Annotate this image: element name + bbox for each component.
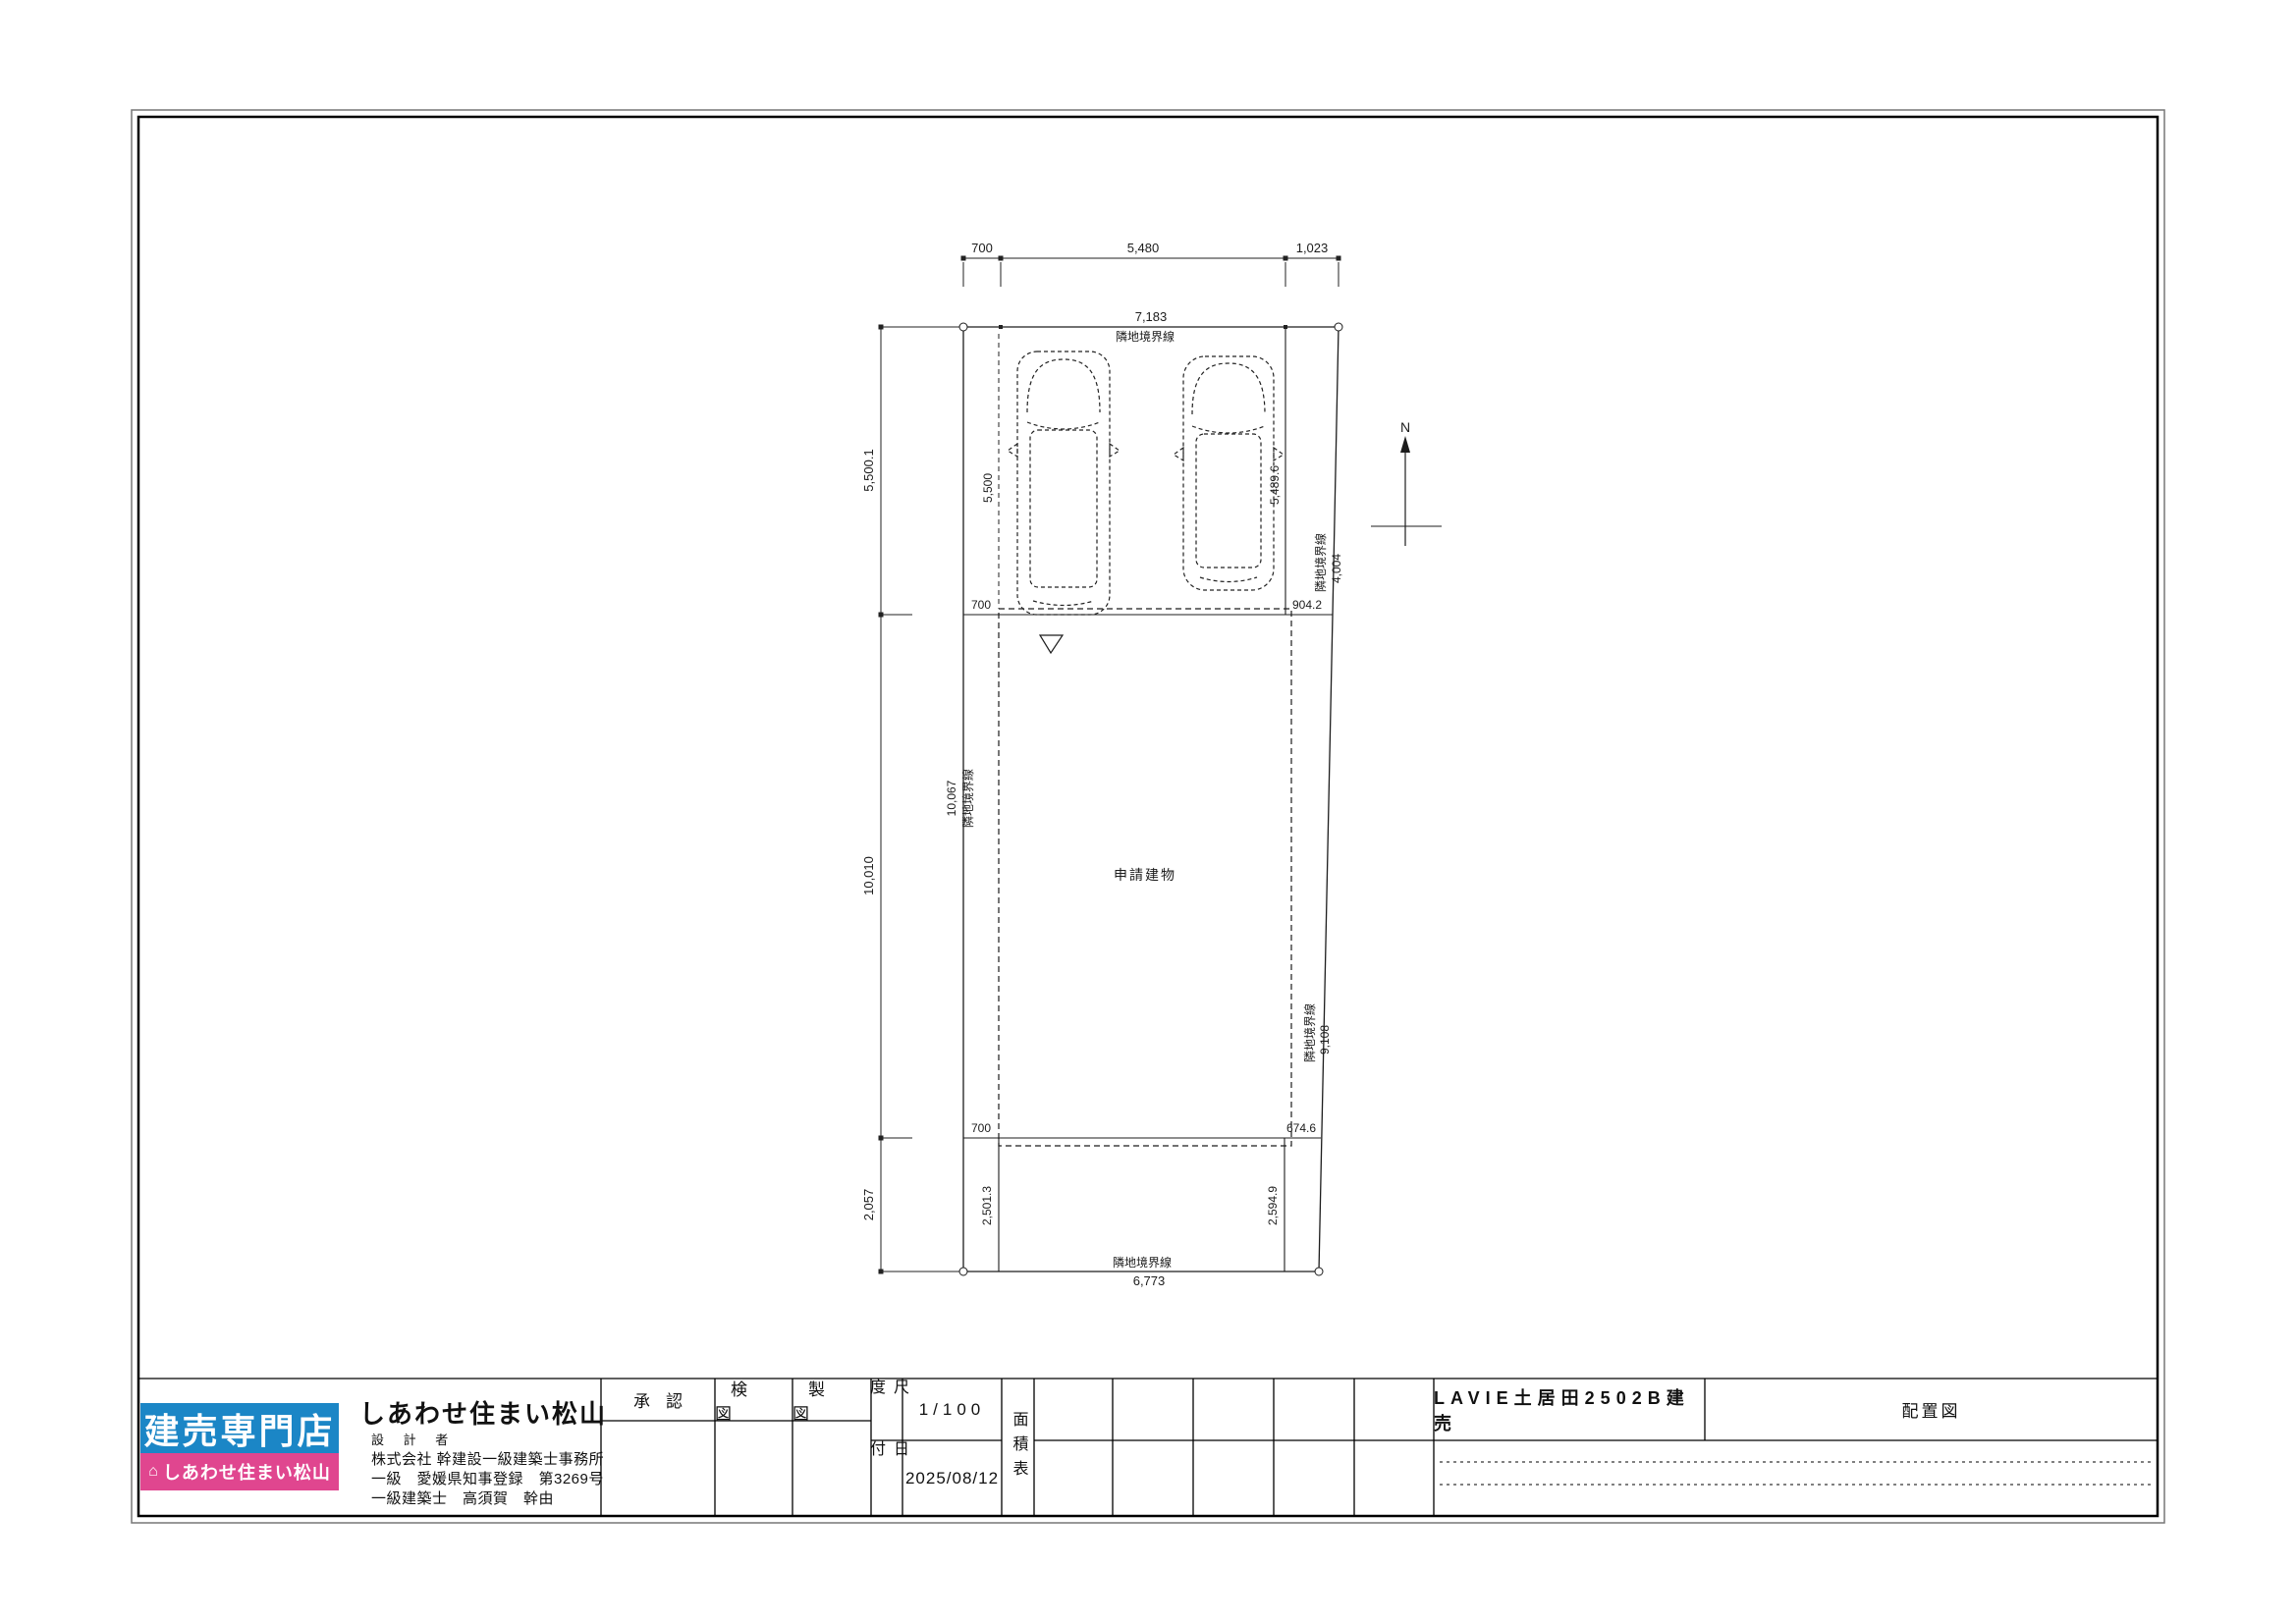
dim-rear-left: 2,501.3 xyxy=(980,1186,994,1225)
date-label: 日付 xyxy=(871,1440,902,1516)
dim-top-right: 1,023 xyxy=(1296,241,1329,255)
dim-park-left: 5,500 xyxy=(981,473,995,503)
logo-text-top: 建売専門店 xyxy=(143,1403,335,1454)
designer-label: 設 計 者 xyxy=(371,1430,456,1448)
check-label: 検図 xyxy=(715,1376,793,1425)
dim-left-mid: 10,010 xyxy=(861,856,876,895)
entrance-marker-icon xyxy=(1040,635,1063,653)
label-north-boundary: 隣地境界線 xyxy=(1116,329,1175,344)
project-title: LAVIE土居田2502B建売 xyxy=(1434,1379,1705,1440)
dim-top-total: 7,183 xyxy=(1135,309,1168,324)
scale-label: 尺度 xyxy=(871,1379,902,1440)
label-east-lower-boundary: 隣地境界線 xyxy=(1302,1003,1317,1062)
area-table-label: 面積表 xyxy=(1002,1379,1034,1516)
house-icon: ⌂ xyxy=(148,1463,159,1481)
dim-east-upper-length: 4,004 xyxy=(1330,554,1343,583)
approve-header: 承認 xyxy=(601,1379,715,1421)
date-value: 2025/08/12 xyxy=(902,1440,1002,1516)
dim-rear-right: 2,594.9 xyxy=(1266,1186,1280,1225)
dim-south-boundary-length: 6,773 xyxy=(1133,1273,1166,1288)
check-header: 検図 xyxy=(715,1379,793,1421)
label-east-upper-boundary: 隣地境界線 xyxy=(1313,533,1328,592)
logo-banner-bottom: ⌂ しあわせ住まい松山 xyxy=(140,1453,339,1490)
north-arrow-icon: N xyxy=(1371,419,1442,546)
drawing-title: 配置図 xyxy=(1705,1379,2158,1440)
dim-upper-offset-left: 700 xyxy=(971,598,991,612)
dim-left-upper: 5,500.1 xyxy=(861,449,876,491)
dim-west-boundary-length: 10,067 xyxy=(945,780,958,816)
dim-lower-offset-left: 700 xyxy=(971,1121,991,1135)
dim-top-left: 700 xyxy=(971,241,993,255)
label-west-boundary: 隣地境界線 xyxy=(960,769,975,828)
logo-text-bottom: しあわせ住まい松山 xyxy=(163,1459,331,1485)
car-left-outline xyxy=(1008,352,1120,615)
north-label: N xyxy=(1400,419,1410,435)
dim-east-lower-length: 9,108 xyxy=(1318,1025,1332,1055)
design-office: 株式会社 幹建設一級建築士事務所 xyxy=(371,1448,604,1469)
scale-value: 1/100 xyxy=(902,1379,1002,1440)
draft-header: 製図 xyxy=(793,1379,871,1421)
approve-label: 承認 xyxy=(618,1387,698,1412)
company-name: しあわせ住まい松山 xyxy=(359,1394,607,1431)
logo-banner-top: 建売専門店 xyxy=(140,1403,339,1453)
dim-upper-offset-right: 904.2 xyxy=(1292,598,1322,612)
license-registration: 一級 愛媛県知事登録 第3269号 xyxy=(371,1468,604,1488)
top-dimension-line xyxy=(961,256,1340,287)
dim-park-right: 5,489.6 xyxy=(1268,465,1282,505)
architect-name: 一級建築士 高須賀 幹由 xyxy=(371,1488,554,1508)
draft-label: 製図 xyxy=(793,1376,871,1425)
drawing-sheet: 700 5,480 1,023 7,183 隣地境界線 5,500.1 xyxy=(0,0,2296,1623)
dim-left-lower: 2,057 xyxy=(861,1189,876,1221)
label-south-boundary: 隣地境界線 xyxy=(1113,1255,1172,1270)
dim-top-mid: 5,480 xyxy=(1127,241,1160,255)
building-label: 申請建物 xyxy=(1114,867,1176,883)
